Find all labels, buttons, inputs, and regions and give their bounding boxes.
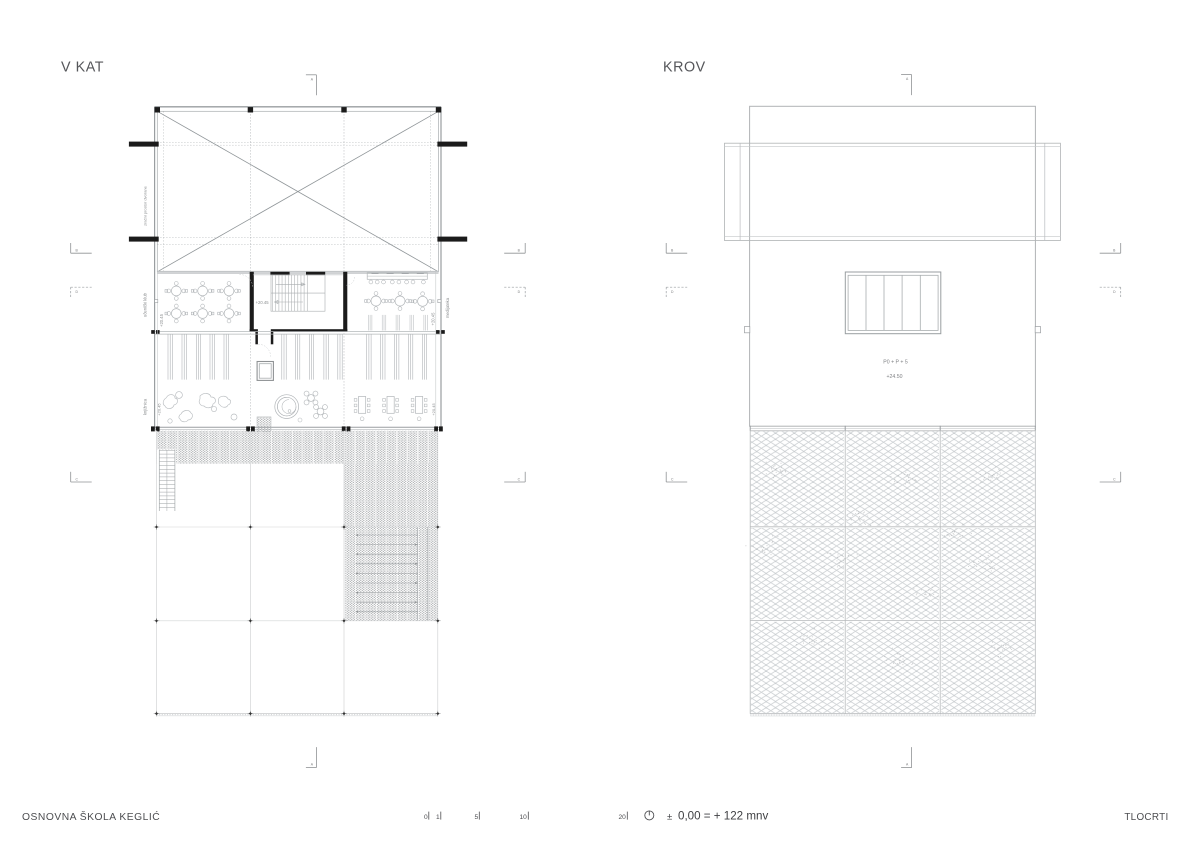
svg-text:5: 5 bbox=[475, 814, 479, 821]
svg-text:0: 0 bbox=[424, 814, 428, 821]
svg-text:+20.45: +20.45 bbox=[431, 312, 436, 326]
svg-text:+20.45: +20.45 bbox=[431, 403, 436, 416]
svg-text:TLOCRTI: TLOCRTI bbox=[1124, 812, 1168, 823]
svg-text:+20.45: +20.45 bbox=[159, 313, 164, 327]
svg-text:medijateka: medijateka bbox=[445, 297, 450, 318]
svg-text:1: 1 bbox=[436, 814, 440, 821]
svg-text:KROV: KROV bbox=[663, 60, 706, 76]
svg-text:±: ± bbox=[667, 812, 672, 823]
svg-text:knjižnica: knjižnica bbox=[142, 398, 147, 415]
svg-text:+20.45: +20.45 bbox=[256, 300, 270, 305]
svg-text:P0 + P + 5: P0 + P + 5 bbox=[883, 360, 908, 366]
svg-text:OSNOVNA ŠKOLA KEGLIĆ: OSNOVNA ŠKOLA KEGLIĆ bbox=[22, 810, 160, 823]
svg-text:učenički klub: učenički klub bbox=[142, 292, 147, 317]
svg-text:V KAT: V KAT bbox=[61, 60, 104, 76]
svg-text:20: 20 bbox=[619, 814, 627, 821]
svg-text:10: 10 bbox=[520, 814, 528, 821]
svg-text:0,00 = + 122 mnv: 0,00 = + 122 mnv bbox=[678, 810, 768, 823]
svg-text:+24.50: +24.50 bbox=[886, 374, 902, 380]
svg-text:zračni prostor dvorane: zračni prostor dvorane bbox=[142, 185, 147, 226]
